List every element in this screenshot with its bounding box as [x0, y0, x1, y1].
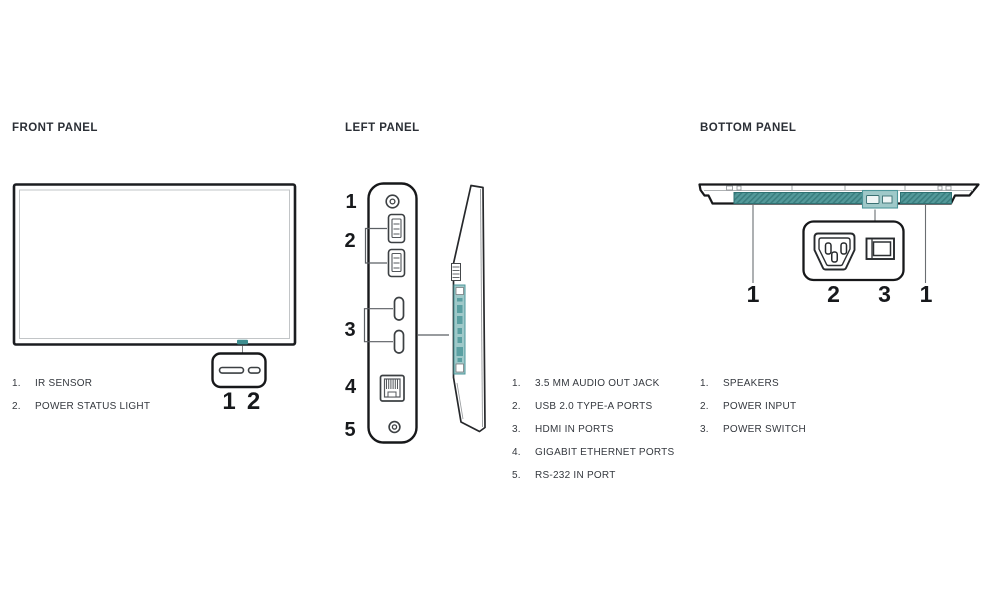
monitor-front-outline — [14, 185, 295, 345]
hdmi-port-2 — [395, 331, 404, 354]
legend-num: 2. — [700, 401, 723, 412]
legend-label: RS-232 IN PORT — [535, 470, 616, 481]
front-callout-2: 2 — [247, 388, 260, 415]
power-area-highlight — [863, 191, 898, 209]
usb-port-2 — [389, 250, 405, 277]
legend-num: 3. — [512, 424, 535, 435]
bottom-legend: 1. SPEAKERS 2. POWER INPUT 3. POWER SWIT… — [700, 378, 806, 435]
speaker-strip-right — [901, 193, 952, 204]
legend-item: 3. POWER SWITCH — [700, 424, 806, 435]
legend-item: 2. USB 2.0 TYPE-A PORTS — [512, 401, 674, 412]
power-switch — [867, 239, 895, 260]
left-panel-drawing: 1 2 3 4 5 — [344, 184, 485, 443]
legend-label: USB 2.0 TYPE-A PORTS — [535, 401, 652, 412]
left-callout-2: 2 — [344, 230, 355, 252]
ir-sensor-mark — [237, 340, 248, 345]
legend-item: 1. 3.5 MM AUDIO OUT JACK — [512, 378, 674, 389]
left-callout-4: 4 — [345, 376, 357, 398]
audio-jack-port — [386, 195, 399, 208]
monitor-side-view — [452, 186, 486, 432]
side-vent — [452, 264, 461, 281]
front-detail-box — [213, 354, 266, 388]
ethernet-port — [381, 376, 405, 402]
bottom-callout-1-left: 1 — [747, 281, 760, 307]
legend-item: 1. IR SENSOR — [12, 378, 150, 389]
legend-label: GIGABIT ETHERNET PORTS — [535, 447, 674, 458]
legend-label: POWER INPUT — [723, 401, 796, 412]
legend-num: 1. — [700, 378, 723, 389]
legend-item: 4. GIGABIT ETHERNET PORTS — [512, 447, 674, 458]
left-callout-1: 1 — [345, 191, 356, 213]
power-detail-box — [804, 222, 904, 281]
legend-item: 2. POWER INPUT — [700, 401, 806, 412]
legend-label: 3.5 MM AUDIO OUT JACK — [535, 378, 660, 389]
legend-num: 4. — [512, 447, 535, 458]
legend-num: 1. — [512, 378, 535, 389]
legend-num: 2. — [12, 401, 35, 412]
rs232-port — [389, 422, 400, 433]
legend-num: 5. — [512, 470, 535, 481]
bottom-callout-1-right: 1 — [920, 281, 933, 307]
legend-num: 1. — [12, 378, 35, 389]
bottom-callout-3: 3 — [878, 281, 891, 307]
legend-num: 2. — [512, 401, 535, 412]
legend-label: HDMI IN PORTS — [535, 424, 614, 435]
legend-label: SPEAKERS — [723, 378, 779, 389]
bottom-panel-drawing: 1 2 3 1 — [700, 185, 979, 308]
legend-label: POWER STATUS LIGHT — [35, 401, 150, 412]
legend-label: IR SENSOR — [35, 378, 92, 389]
page: FRONT PANEL LEFT PANEL BOTTOM PANEL 1 2 — [0, 0, 1000, 600]
legend-num: 3. — [700, 424, 723, 435]
legend-label: POWER SWITCH — [723, 424, 806, 435]
legend-item: 1. SPEAKERS — [700, 378, 806, 389]
left-callout-3: 3 — [344, 319, 355, 341]
front-callout-1: 1 — [222, 388, 235, 415]
ir-sensor-window — [220, 368, 244, 374]
left-legend: 1. 3.5 MM AUDIO OUT JACK 2. USB 2.0 TYPE… — [512, 378, 674, 481]
speaker-strip-left — [734, 193, 863, 204]
panel-diagrams: 1 2 — [0, 0, 1000, 600]
power-input-socket — [815, 234, 855, 270]
hdmi-port-1 — [395, 298, 404, 321]
bottom-callout-2: 2 — [827, 281, 840, 307]
front-legend: 1. IR SENSOR 2. POWER STATUS LIGHT — [12, 378, 150, 412]
legend-item: 3. HDMI IN PORTS — [512, 424, 674, 435]
legend-item: 2. POWER STATUS LIGHT — [12, 401, 150, 412]
legend-item: 5. RS-232 IN PORT — [512, 470, 674, 481]
left-callout-5: 5 — [344, 419, 355, 441]
power-status-light — [249, 368, 261, 374]
usb-port-1 — [389, 215, 405, 243]
